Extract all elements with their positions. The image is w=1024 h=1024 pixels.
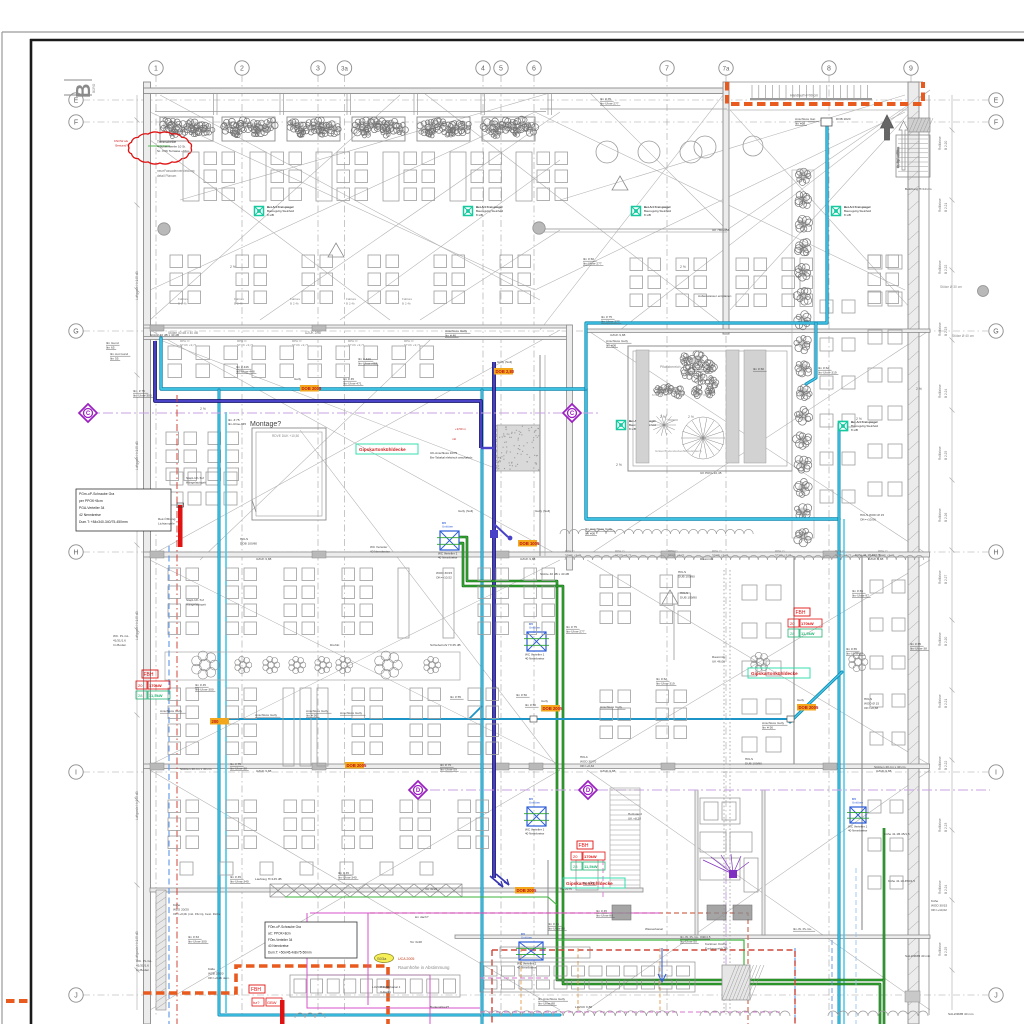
svg-text:Ilm #58: Ilm #58: [795, 122, 805, 126]
svg-text:OK=+10,52: OK=+10,52: [436, 576, 452, 580]
svg-text:Bm-Tabakal elektrisch anschake: Bm-Tabakal elektrisch anschakeln: [430, 456, 473, 460]
svg-text:Anschluss Gully: Anschluss Gully: [606, 339, 628, 343]
svg-text:B 2.21: B 2.21: [944, 203, 948, 212]
svg-text:Pflanzbereich: Pflanzbereich: [660, 365, 681, 369]
svg-text:Ilm-W. PL.GL. #40/4,5: Ilm-W. PL.GL. #40/4,5: [680, 935, 711, 939]
svg-text:Ilm-Ulme+468: Ilm-Ulme+468: [358, 362, 378, 366]
svg-text:B 2.4b: B 2.4b: [402, 302, 411, 306]
svg-text:DOB 2005: DOB 2005: [543, 706, 563, 711]
svg-text:Ilm # 56: Ilm # 56: [306, 714, 317, 718]
svg-text:STUK +9,71: STUK +9,71: [835, 553, 852, 557]
svg-text:Tor 3x10: Tor 3x10: [425, 887, 437, 891]
svg-text:Anschluss Gully: Anschluss Gully: [445, 329, 467, 333]
svg-text:OK=+10,06: OK=+10,06: [860, 518, 876, 522]
svg-text:OK=+10,02: OK=+10,02: [931, 908, 947, 912]
svg-text:HKLS WOD Ø 15: HKLS WOD Ø 15: [860, 513, 884, 517]
svg-text:DOB 1005: DOB 1005: [520, 541, 540, 546]
svg-text:Anschluss Gully: Anschluss Gully: [160, 709, 182, 713]
svg-text:Bestand?: Bestand?: [115, 144, 128, 148]
svg-text:Rollfahne: Rollfahne: [938, 136, 942, 150]
svg-text:Ilm # 50: Ilm # 50: [516, 693, 527, 697]
svg-text:Umlöten: Umlöten: [852, 801, 864, 805]
svg-text:DOB 2005: DOB 2005: [517, 888, 537, 893]
svg-text:Ilm # 65: Ilm # 65: [846, 647, 857, 651]
svg-text:UZUK 9,88: UZUK 9,88: [600, 769, 616, 773]
svg-text:Ilm-Ulme-300: Ilm-Ulme-300: [133, 394, 152, 398]
svg-text:Ilm.Aut Gund: Ilm.Aut Gund: [110, 352, 128, 356]
svg-text:Ilm-Ulme-59: Ilm-Ulme-59: [440, 768, 457, 772]
svg-text:UCA 2005: UCA 2005: [398, 957, 414, 961]
svg-text:WZB 20/20: WZB 20/20: [208, 972, 224, 976]
svg-text:Anschluss Gully: Anschluss Gully: [762, 721, 784, 725]
svg-text:S03a: S03a: [377, 956, 387, 961]
svg-text:Gully (Soll): Gully (Soll): [458, 509, 473, 513]
svg-text:B 2.22: B 2.22: [944, 761, 948, 770]
svg-text:Hängelautsprit: Hängelautsprit: [186, 603, 206, 607]
svg-text:Ilm-Ulme-88: Ilm-Ulme-88: [596, 914, 613, 918]
svg-text:aC: PPOK+8cm: aC: PPOK+8cm: [268, 931, 291, 935]
svg-text:B 2.20: B 2.20: [944, 637, 948, 646]
svg-text:DOB 2020: DOB 2020: [836, 117, 851, 121]
svg-text:Ilm-Ulme-88: Ilm-Ulme-88: [538, 1002, 555, 1006]
svg-text:Ilm-Ulme-300: Ilm-Ulme-300: [188, 940, 207, 944]
svg-text:Ilm # 75: Ilm # 75: [440, 763, 451, 767]
svg-text:40 Nennkreise: 40 Nennkreise: [525, 657, 545, 661]
svg-text:41/31/1.6: 41/31/1.6: [136, 964, 149, 968]
svg-text:4-Scheinwerfer 10 St.: 4-Scheinwerfer 10 St.: [157, 145, 186, 149]
svg-text:6: 6: [532, 65, 536, 72]
svg-text:UZUK 9,88: UZUK 9,88: [868, 557, 884, 561]
svg-text:8 stB: 8 stB: [644, 213, 651, 217]
svg-text:8 stB: 8 stB: [844, 213, 851, 217]
svg-text:Kühe: Kühe: [173, 903, 181, 907]
svg-text:hz?: hz?: [253, 1000, 260, 1005]
svg-text:Rollfahne: Rollfahne: [938, 818, 942, 832]
svg-text:UZUK 9,88: UZUK 9,88: [876, 769, 892, 773]
svg-text:Gipskartonkühldecke: Gipskartonkühldecke: [751, 671, 798, 676]
svg-text:DOB 100/80: DOB 100/80: [240, 542, 257, 546]
svg-text:G: G: [73, 328, 78, 335]
svg-text:UK 46,00: UK 46,00: [712, 660, 725, 664]
svg-text:STUK +9,71: STUK +9,71: [565, 553, 582, 557]
svg-text:Luftgarde H=145 dB: Luftgarde H=145 dB: [135, 791, 139, 820]
svg-text:RDVE DUK +10,50: RDVE DUK +10,50: [272, 434, 299, 438]
svg-text:Rollfahne: Rollfahne: [938, 198, 942, 212]
svg-text:FBH: FBH: [796, 610, 806, 616]
svg-text:DOB 2,80: DOB 2,80: [496, 369, 515, 374]
svg-text:Anschluss Gully: Anschluss Gully: [306, 709, 328, 713]
svg-text:Ilm-W. PL.GL.: Ilm-W. PL.GL.: [793, 927, 812, 931]
svg-text:J: J: [74, 992, 78, 999]
svg-text:Schiebetrohr H=45 dB: Schiebetrohr H=45 dB: [430, 643, 461, 647]
svg-text:F: F: [994, 119, 998, 126]
svg-text:F: F: [74, 119, 78, 126]
svg-text:DUB 100/80: DUB 100/80: [745, 762, 762, 766]
svg-text:OK=+0,38: OK=+0,38: [864, 706, 878, 710]
svg-text:Gully: Gully: [541, 699, 549, 703]
svg-text:Funkenmeldt 3B: Funkenmeldt 3B: [705, 947, 728, 951]
svg-text:2 %: 2 %: [660, 415, 666, 419]
svg-text:42 Nennkreise: 42 Nennkreise: [79, 513, 101, 517]
svg-text:Rollfahne: Rollfahne: [938, 756, 942, 770]
svg-text:Ilm #36: Ilm #36: [606, 344, 616, 348]
svg-text:Ilm # 65: Ilm # 65: [852, 589, 863, 593]
svg-text:Ilm # 45: Ilm # 45: [596, 909, 607, 913]
svg-text:3-4teilig: 3-4teilig: [380, 990, 391, 994]
svg-text:FBH: FBH: [251, 987, 261, 993]
svg-text:Ilm-Ulme-277: Ilm-Ulme-277: [566, 630, 585, 634]
svg-text:OK=+0,2b dem.: OK=+0,2b dem.: [208, 976, 230, 980]
svg-text:Falttore: Falttore: [178, 297, 189, 301]
svg-text:2: 2: [240, 65, 244, 72]
svg-text:Falttore: Falttore: [402, 297, 413, 301]
svg-text:FÖm-Verteiler 34: FÖm-Verteiler 34: [268, 938, 292, 942]
svg-text:WOD 30/70: WOD 30/70: [580, 760, 596, 764]
svg-text:Ilm-Ulme-277: Ilm-Ulme-277: [600, 102, 619, 106]
svg-text:Stütze Ø 40 cm: Stütze Ø 40 cm: [952, 334, 974, 338]
svg-text:UZUK 9,88: UZUK 9,88: [610, 333, 626, 337]
svg-text:Rollfahne: Rollfahne: [938, 570, 942, 584]
svg-text:Kälte: Kälte: [208, 967, 215, 971]
svg-text:Ilm # 62: Ilm # 62: [656, 677, 667, 681]
svg-text:GBW: GBW: [267, 1000, 277, 1005]
svg-text:D: D: [586, 788, 591, 794]
svg-text:Umlöten: Umlöten: [529, 801, 541, 805]
svg-text:neueFassadenverkleidung: neueFassadenverkleidung: [157, 169, 195, 173]
svg-text:J: J: [994, 992, 998, 999]
svg-text:Ilm. # 75: Ilm. # 75: [133, 389, 145, 393]
svg-text:Gully: Gully: [294, 377, 302, 381]
svg-text:STUK +9,71: STUK +9,71: [237, 343, 254, 347]
svg-text:H: H: [73, 549, 78, 556]
svg-text:HKLS: HKLS: [678, 570, 686, 574]
svg-text:Ilm.Anschluss Gully: Ilm.Anschluss Gully: [585, 527, 612, 531]
svg-text:FÖm-oP-Schraube Gra: FÖm-oP-Schraube Gra: [268, 925, 301, 929]
svg-text:Stütze Ø 30 cm: Stütze Ø 30 cm: [940, 285, 962, 289]
svg-text:8: 8: [827, 65, 831, 72]
svg-text:7a: 7a: [723, 66, 730, 72]
svg-text:2 %: 2 %: [200, 407, 206, 411]
svg-text:Luftgarde H=145 dB: Luftgarde H=145 dB: [135, 611, 139, 640]
svg-text:1: 1: [154, 65, 158, 72]
svg-text:HKLS: HKLS: [680, 591, 688, 595]
svg-text:Holzstand: Holzstand: [628, 812, 642, 816]
svg-text:Rollfahne: Rollfahne: [938, 694, 942, 708]
svg-text:SALZ/ZMB 40 min: SALZ/ZMB 40 min: [905, 954, 931, 958]
svg-text:Tor 3x48: Tor 3x48: [410, 940, 422, 944]
svg-text:170kW: 170kW: [801, 621, 814, 626]
svg-text:PGm-oP-Schraube Gra: PGm-oP-Schraube Gra: [79, 492, 114, 496]
svg-text:STUK +9,71: STUK +9,71: [404, 343, 421, 347]
svg-text:2 %: 2 %: [688, 415, 694, 419]
svg-text:Ilm 55: Ilm 55: [110, 357, 119, 361]
svg-text:Ilm-Ulme-345: Ilm-Ulme-345: [228, 422, 246, 426]
svg-text:20: 20: [138, 683, 143, 688]
svg-text:STUK +9,71: STUK +9,71: [615, 553, 632, 557]
svg-text:Ilm # 60: Ilm # 60: [583, 257, 594, 261]
svg-text:Ilm # 45: Ilm # 45: [338, 871, 349, 875]
svg-text:I: I: [75, 769, 77, 776]
svg-text:FBH: FBH: [144, 672, 154, 678]
svg-text:Bodenablauf?: Bodenablauf?: [430, 1005, 449, 1009]
svg-text:B 2.4b: B 2.4b: [234, 302, 243, 306]
svg-text:Ilm-Ulme-88: Ilm-Ulme-88: [548, 927, 565, 931]
svg-text:STUK +9,71: STUK +9,71: [180, 343, 197, 347]
svg-text:UZUK 9,88: UZUK 9,88: [256, 769, 272, 773]
svg-text:B 2.4b: B 2.4b: [178, 302, 187, 306]
svg-text:Ilm # 75: Ilm # 75: [566, 625, 577, 629]
svg-text:B 2.20: B 2.20: [944, 141, 948, 150]
svg-text:STUK +9,71: STUK +9,71: [668, 553, 685, 557]
svg-text:40 Nennkreise: 40 Nennkreise: [525, 832, 545, 836]
svg-text:Ilm # 45: Ilm # 45: [343, 377, 354, 381]
svg-text:Rollfahne: Rollfahne: [938, 942, 942, 956]
svg-text:Ilm # 56: Ilm # 56: [762, 726, 773, 730]
svg-text:Dum.T: +84x340-340/75-450mm: Dum.T: +84x340-340/75-450mm: [79, 520, 128, 524]
svg-text:Stützen 40 cm x 40 cm: Stützen 40 cm x 40 cm: [874, 765, 906, 769]
svg-text:UZUK 2/08: UZUK 2/08: [305, 331, 321, 335]
svg-text:UK-Anschluss 10/75: UK-Anschluss 10/75: [430, 451, 458, 455]
svg-text:WOD 30/15: WOD 30/15: [931, 904, 947, 908]
svg-text:8 stB: 8 stB: [629, 427, 636, 431]
svg-text:Ilm # 75: Ilm # 75: [600, 97, 611, 101]
svg-text:200: 200: [212, 719, 220, 724]
svg-text:Trennscheibe: Trennscheibe: [157, 140, 176, 144]
svg-text:DOB 2005: DOB 2005: [347, 763, 367, 768]
svg-text:B 2.21: B 2.21: [944, 699, 948, 708]
svg-text:11,5kW: 11,5kW: [149, 693, 163, 698]
svg-text:UK PRO+10,45: UK PRO+10,45: [700, 471, 722, 475]
svg-text:9: 9: [909, 65, 913, 72]
svg-text:8 stB: 8 stB: [267, 213, 274, 217]
svg-text:detail Planum: detail Planum: [157, 174, 177, 178]
svg-text:B 2.4b: B 2.4b: [290, 302, 299, 306]
svg-text:UK 780+456: UK 780+456: [712, 228, 730, 232]
svg-text:Kühe 41.18.450/1,5: Kühe 41.18.450/1,5: [888, 879, 915, 883]
svg-text:OK=+0,0b (mit. 15cm), best. Di: OK=+0,0b (mit. 15cm), best. Dicke: [173, 912, 221, 916]
svg-text:Ilm # 50: Ilm # 50: [525, 703, 536, 707]
svg-text:M 06 +7,64: M 06 +7,64: [652, 393, 667, 397]
svg-text:KNOW als: KNOW als: [114, 139, 129, 143]
svg-text:Luftgarde H=145 dB: Luftgarde H=145 dB: [135, 271, 139, 300]
svg-text:Ilm # 63: Ilm # 63: [188, 935, 199, 939]
svg-text:Ilm # 75: Ilm # 75: [601, 315, 612, 319]
svg-text:Kühe 41.1B.45/1,5: Kühe 41.1B.45/1,5: [884, 832, 910, 836]
svg-text:Ilm # 45: Ilm # 45: [195, 683, 206, 687]
svg-text:UK +8,20: UK +8,20: [628, 817, 641, 821]
svg-text:Rollfahne: Rollfahne: [938, 632, 942, 646]
svg-text:Ilm # 60: Ilm # 60: [753, 367, 764, 371]
svg-text:Stütze 40 dB x 40 dB: Stütze 40 dB x 40 dB: [150, 333, 179, 337]
svg-text:170kW: 170kW: [584, 854, 597, 859]
svg-text:DOB 2005: DOB 2005: [799, 705, 819, 710]
svg-text:41/31/1.6: 41/31/1.6: [113, 639, 126, 643]
svg-text:H: H: [993, 549, 998, 556]
svg-text:11,5kW: 11,5kW: [801, 631, 815, 636]
svg-text:Gully: Gully: [797, 698, 805, 702]
svg-text:Wasserkanal: Wasserkanal: [645, 927, 663, 931]
svg-text:Ilm # 75: Ilm # 75: [230, 762, 241, 766]
svg-text:Anschluss Gully: Anschluss Gully: [600, 705, 622, 709]
svg-text:N 06 +7,64: N 06 +7,64: [692, 393, 707, 397]
svg-text:Ilm-Ulme-319: Ilm-Ulme-319: [656, 682, 675, 686]
svg-text:B 2.25: B 2.25: [944, 451, 948, 460]
svg-text:Umlöten: Umlöten: [442, 525, 454, 529]
svg-text:Ilm # 62: Ilm # 62: [818, 366, 829, 370]
svg-text:Rollfahne: Rollfahne: [938, 508, 942, 522]
svg-text:Ilm-Ulme-340: Ilm-Ulme-340: [230, 880, 249, 884]
svg-text:Kantinen Küche: Kantinen Küche: [705, 942, 727, 946]
svg-text:Ilm Gund: Ilm Gund: [106, 341, 119, 345]
svg-text:7: 7: [665, 65, 669, 72]
svg-text:Raumhöhe in Abstimmung: Raumhöhe in Abstimmung: [398, 965, 450, 970]
svg-text:Rollfahne: Rollfahne: [938, 260, 942, 274]
svg-text:PGA-Verteiler 34: PGA-Verteiler 34: [79, 506, 105, 510]
svg-text:G: G: [993, 328, 998, 335]
svg-text:B 2.25: B 2.25: [944, 947, 948, 956]
svg-text:Außenwasser entplanen: Außenwasser entplanen: [698, 294, 732, 298]
svg-text:B 2.26: B 2.26: [944, 513, 948, 522]
svg-text:B 2.24: B 2.24: [944, 389, 948, 398]
svg-text:28: 28: [573, 864, 578, 869]
svg-text:Laufsteg H=145 dB: Laufsteg H=145 dB: [255, 877, 282, 881]
svg-text:I: I: [995, 769, 997, 776]
svg-text:B 2.4b: B 2.4b: [346, 302, 355, 306]
svg-text:STUK +9,71: STUK +9,71: [348, 343, 365, 347]
svg-text:Ilm # 45: Ilm # 45: [583, 881, 594, 885]
svg-text:Montage?: Montage?: [250, 421, 281, 428]
svg-text:DUB 100/80: DUB 100/80: [678, 575, 695, 579]
svg-text:HKLb: HKLb: [580, 755, 588, 759]
svg-text:8 stB: 8 stB: [476, 213, 483, 217]
svg-text:Anschluss Gully: Anschluss Gully: [255, 713, 277, 717]
svg-text:40 Nennkreise: 40 Nennkreise: [268, 944, 289, 948]
svg-text:Gräser/Bodendecker/Einzelstrau: Gräser/Bodendecker/Einzelstrauch: [655, 449, 702, 453]
svg-text:40 Nennkreise: 40 Nennkreise: [848, 829, 868, 833]
svg-text:HKLS: HKLS: [745, 757, 753, 761]
svg-text:C: C: [86, 411, 91, 417]
svg-text:Ilm # 55: Ilm # 55: [450, 695, 461, 699]
svg-text:B 2.24: B 2.24: [944, 885, 948, 894]
svg-text:HKLS: HKLS: [864, 697, 872, 701]
svg-text:Falttore: Falttore: [290, 297, 301, 301]
svg-text:Tor 2x75: Tor 2x75: [560, 887, 572, 891]
svg-text:Rollfahne: Rollfahne: [938, 384, 942, 398]
svg-text:+9,50 m: +9,50 m: [455, 427, 466, 431]
svg-text:STUK +9,71: STUK +9,71: [712, 553, 729, 557]
svg-text:Stapl-UK-Tuf: Stapl-UK-Tuf: [186, 598, 204, 602]
svg-text:Luftgarde H=145 dB: Luftgarde H=145 dB: [135, 931, 139, 960]
svg-text:Im Boden: Im Boden: [136, 968, 150, 972]
svg-text:20: 20: [573, 854, 578, 859]
svg-text:B 2.22: B 2.22: [944, 265, 948, 274]
svg-text:Rek.Öffnung: Rek.Öffnung: [158, 517, 176, 521]
svg-text:WOD Ø 15: WOD Ø 15: [864, 702, 879, 706]
svg-text:km dach?: km dach?: [415, 915, 429, 919]
svg-text:Ilm-Ulme-319: Ilm-Ulme-319: [818, 371, 837, 375]
svg-text:STUK +9,71: STUK +9,71: [292, 343, 309, 347]
svg-text:WZO 20/20: WZO 20/20: [173, 908, 189, 912]
svg-text:40 Nennkreise: 40 Nennkreise: [438, 556, 458, 560]
svg-text:Anschluss Gully: Anschluss Gully: [340, 711, 362, 715]
svg-text:Ilm-Ulme-471: Ilm-Ulme-471: [343, 382, 362, 386]
svg-text:WOD 30/15: WOD 30/15: [436, 571, 452, 575]
svg-text:D: D: [416, 788, 421, 794]
svg-text:UZUK 9,88: UZUK 9,88: [520, 557, 536, 561]
svg-text:2 %: 2 %: [680, 265, 686, 269]
svg-text:11,5kW: 11,5kW: [584, 864, 598, 869]
svg-text:2 %: 2 %: [856, 417, 862, 421]
svg-text:mtl: mtl: [452, 437, 456, 441]
svg-text:B 2.27: B 2.27: [944, 575, 948, 584]
svg-text:per PPOK+8cm: per PPOK+8cm: [79, 499, 103, 503]
svg-text:2 %: 2 %: [230, 265, 236, 269]
svg-text:Ilm # 45: Ilm # 45: [548, 922, 559, 926]
svg-text:LUZUK 9,88: LUZUK 9,88: [372, 985, 389, 989]
svg-text:OK=+0,32: OK=+0,32: [580, 764, 594, 768]
svg-text:28: 28: [790, 631, 795, 636]
svg-text:BÜRO: BÜRO: [92, 83, 96, 93]
svg-text:Rollfahne: Rollfahne: [938, 322, 942, 336]
svg-text:Ilm # 46: Ilm # 46: [445, 334, 456, 338]
svg-text:E: E: [994, 97, 999, 104]
svg-text:Ilm-Ulme-300: Ilm-Ulme-300: [195, 688, 214, 692]
svg-text:Drehkr.: Drehkr.: [330, 643, 340, 647]
svg-text:20: 20: [790, 621, 795, 626]
svg-text:Anschluss Gar.: Anschluss Gar.: [795, 117, 816, 121]
svg-text:Ilm # 446: Ilm # 446: [236, 365, 249, 369]
svg-text:Im Boden: Im Boden: [113, 643, 127, 647]
svg-text:B 2.23: B 2.23: [944, 327, 948, 336]
svg-text:Lichtampele: Lichtampele: [158, 522, 175, 526]
svg-text:STUK +9,71: STUK +9,71: [775, 553, 792, 557]
svg-text:WC Verteiler: WC Verteiler: [370, 545, 387, 549]
svg-text:170kW: 170kW: [149, 683, 162, 688]
svg-text:3: 3: [316, 65, 320, 72]
svg-text:Stütze 40 dB x 40 dB: Stütze 40 dB x 40 dB: [540, 572, 569, 576]
svg-text:LUZUK 9,88: LUZUK 9,88: [575, 1005, 592, 1009]
svg-text:Ilm # 65: Ilm # 65: [910, 642, 921, 646]
svg-text:Ilm-Ulme-340: Ilm-Ulme-340: [338, 876, 357, 880]
svg-text:40 Nennkreise: 40 Nennkreise: [370, 550, 390, 554]
svg-text:Ilm.Anschluss Gully: Ilm.Anschluss Gully: [538, 997, 565, 1001]
svg-text:4: 4: [481, 65, 485, 72]
svg-text:28: 28: [138, 693, 143, 698]
svg-text:Ilm-Ulme-38: Ilm-Ulme-38: [910, 647, 927, 651]
svg-text:Gully (Soll): Gully (Soll): [535, 509, 550, 513]
svg-text:C: C: [570, 411, 575, 417]
svg-text:Handlauf H=90 cm: Handlauf H=90 cm: [790, 94, 818, 98]
svg-text:FBH: FBH: [579, 843, 589, 849]
svg-text:WC. PL.GL.: WC. PL.GL.: [113, 634, 130, 638]
svg-text:Ilm-Ulme-349: Ilm-Ulme-349: [692, 368, 711, 372]
svg-text:Dum.T: +50x/45.4x8x75-50mm: Dum.T: +50x/45.4x8x75-50mm: [268, 951, 312, 955]
svg-text:Hängelautsprit: Hängelautsprit: [186, 481, 206, 485]
svg-text:B 2.23: B 2.23: [944, 823, 948, 832]
svg-text:Gipskartonkühldecke: Gipskartonkühldecke: [359, 447, 406, 452]
svg-text:Luftgarde H=145 dB: Luftgarde H=145 dB: [135, 441, 139, 470]
svg-text:Ilm-Ulme-97: Ilm-Ulme-97: [846, 652, 863, 656]
svg-text:Ilm # 443: Ilm # 443: [358, 357, 371, 361]
svg-text:2 %: 2 %: [616, 463, 622, 467]
svg-text:Ilm-Ulme-277: Ilm-Ulme-277: [583, 262, 602, 266]
svg-text:DUB 100/80: DUB 100/80: [680, 596, 697, 600]
svg-text:Kühe: Kühe: [931, 899, 939, 903]
svg-text:Stützen 40 cm x 40 cm: Stützen 40 cm x 40 cm: [180, 767, 212, 771]
svg-text:Ilm # 63: Ilm # 63: [692, 363, 703, 367]
svg-text:Ilm-Ulme-448: Ilm-Ulme-448: [236, 370, 255, 374]
svg-text:Ilm-Ulme-38: Ilm-Ulme-38: [230, 767, 247, 771]
